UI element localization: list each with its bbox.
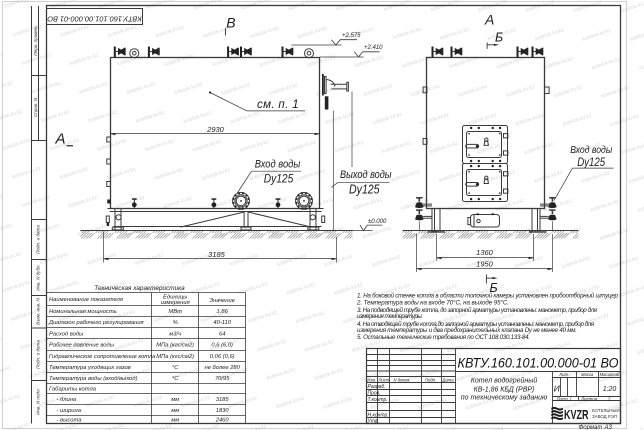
- svg-text:Значение: Значение: [209, 298, 235, 304]
- svg-text:Лист: Лист: [556, 397, 569, 402]
- svg-text:0,6 (6,0): 0,6 (6,0): [211, 343, 233, 349]
- svg-text:Dy125: Dy125: [577, 155, 605, 169]
- svg-text:Формат: Формат: [579, 425, 603, 430]
- svg-text:Гидравлическое сопротивление к: Гидравлическое сопротивление котла: [49, 354, 156, 360]
- svg-text:Подп. и дата: Подп. и дата: [35, 225, 40, 254]
- svg-text:Инв. N подл.: Инв. N подл.: [35, 388, 40, 415]
- svg-text:+2.575: +2.575: [342, 33, 361, 39]
- svg-text:%: %: [173, 320, 178, 326]
- svg-text:Т.контр.: Т.контр.: [368, 397, 388, 403]
- svg-text:Котел водогрейный: Котел водогрейный: [471, 376, 538, 384]
- svg-text:°С: °С: [172, 376, 179, 382]
- svg-text:Температура уходящих газов: Температура уходящих газов: [49, 365, 131, 371]
- svg-text:Номинальная мощность: Номинальная мощность: [49, 309, 117, 315]
- svg-text:- высота: - высота: [57, 418, 83, 424]
- svg-text:3185: 3185: [216, 397, 230, 403]
- svg-text:1950: 1950: [476, 259, 494, 268]
- svg-text:2: 2: [607, 397, 611, 402]
- svg-text:Листов: Листов: [580, 397, 598, 402]
- svg-text:А: А: [484, 12, 494, 28]
- svg-text:Справ. N: Справ. N: [33, 97, 38, 117]
- svg-text:Инв. N дубл.: Инв. N дубл.: [35, 264, 40, 291]
- svg-text:0,06 (0,6): 0,06 (0,6): [210, 354, 235, 360]
- svg-text:Перв. примен.: Перв. примен.: [33, 25, 38, 56]
- svg-text:Подп.: Подп.: [425, 377, 436, 382]
- svg-text:А3: А3: [604, 425, 613, 430]
- svg-text:1830: 1830: [216, 408, 230, 414]
- svg-text:по техническому заданию: по техническому заданию: [461, 394, 548, 402]
- svg-text:Лит.: Лит.: [558, 372, 569, 377]
- svg-text:+2.410: +2.410: [364, 45, 383, 51]
- svg-text:Диапазон рабочего регулировани: Диапазон рабочего регулирования: [48, 320, 144, 326]
- svg-text:КОТЕЛЬНЫЙ: КОТЕЛЬНЫЙ: [592, 408, 620, 413]
- svg-text:3185: 3185: [208, 250, 226, 259]
- svg-text:Температура воды (вход/выход): Температура воды (вход/выход): [49, 376, 138, 382]
- svg-text:Пров.: Пров.: [368, 391, 381, 397]
- svg-text:40-110: 40-110: [213, 320, 231, 326]
- svg-text:Вход воды: Вход воды: [255, 159, 301, 171]
- svg-text:ЗАВОД РЭП: ЗАВОД РЭП: [592, 414, 617, 419]
- svg-text:KVZR: KVZR: [564, 407, 589, 422]
- svg-text:мм: мм: [171, 397, 179, 403]
- svg-text:1,86: 1,86: [217, 309, 229, 315]
- svg-text:В: В: [226, 15, 235, 31]
- svg-text:И: И: [554, 384, 561, 394]
- svg-text:±0.000: ±0.000: [368, 219, 387, 225]
- svg-text:Б: Б: [495, 31, 503, 45]
- svg-text:- длина: - длина: [57, 397, 77, 403]
- svg-text:мм: мм: [171, 418, 179, 424]
- svg-text:Рабочее давление воды: Рабочее давление воды: [49, 343, 115, 349]
- svg-text:2460: 2460: [215, 418, 230, 424]
- svg-text:Изм.: Изм.: [367, 377, 376, 382]
- svg-text:1:20: 1:20: [603, 386, 617, 393]
- svg-text:КВТУ.160.101.00.000-01 ВО: КВТУ.160.101.00.000-01 ВО: [47, 15, 141, 24]
- svg-text:А: А: [55, 131, 66, 148]
- svg-text:- ширина: - ширина: [57, 408, 82, 414]
- svg-text:Дата: Дата: [442, 377, 455, 382]
- svg-text:64: 64: [219, 331, 225, 337]
- svg-text:Масса: Масса: [581, 372, 594, 377]
- svg-text:МПа (кгс/см2): МПа (кгс/см2): [156, 354, 194, 360]
- svg-text:°С: °С: [172, 365, 179, 371]
- svg-text:Dy125: Dy125: [349, 182, 380, 196]
- svg-text:Лист: Лист: [378, 377, 390, 382]
- svg-text:МПа (кгс/см2): МПа (кгс/см2): [156, 343, 194, 349]
- svg-text:Подп. и дата: Подп. и дата: [35, 340, 40, 369]
- svg-text:70/95: 70/95: [215, 376, 230, 382]
- svg-text:1360: 1360: [476, 248, 494, 257]
- svg-text:2930: 2930: [206, 125, 225, 134]
- svg-text:измерения: измерения: [161, 300, 190, 306]
- svg-text:измерения температуры.: измерения температуры.: [357, 313, 423, 320]
- svg-text:Техническая характеристика: Техническая характеристика: [94, 285, 185, 292]
- svg-text:Масштаб: Масштаб: [600, 372, 620, 377]
- svg-text:2. Температура воды на входе: 2. Температура воды на входе 70°С, на вы…: [356, 300, 509, 307]
- svg-text:КВ-1,86 КБД (РВР): КВ-1,86 КБД (РВР): [474, 387, 535, 394]
- svg-text:не более 280: не более 280: [205, 365, 241, 371]
- svg-text:Взам. инв. N: Взам. инв. N: [35, 297, 40, 324]
- svg-text:5. Остальные технические треб: 5. Остальные технические требования по О…: [357, 334, 530, 341]
- svg-text:Разраб.: Разраб.: [368, 384, 386, 390]
- svg-text:Расход воды: Расход воды: [49, 331, 84, 337]
- svg-text:м3/ч: м3/ч: [169, 331, 181, 337]
- svg-text:N докум.: N докум.: [394, 377, 411, 382]
- svg-text:1. На боковой стенке котла в: 1. На боковой стенке котла в области топ…: [357, 292, 619, 299]
- svg-text:Выход воды: Выход воды: [340, 169, 392, 181]
- svg-text:Утв.: Утв.: [368, 419, 379, 425]
- svg-text:Наименование показателя: Наименование показателя: [49, 297, 123, 303]
- svg-text:Dy125: Dy125: [264, 171, 294, 185]
- svg-text:КВТУ.160.101.00.000-01 ВО: КВТУ.160.101.00.000-01 ВО: [458, 355, 619, 371]
- svg-text:МВт: МВт: [168, 309, 182, 315]
- svg-text:Габариты котла: Габариты котла: [49, 387, 97, 393]
- svg-text:мм: мм: [171, 408, 179, 414]
- svg-text:см. п. 1: см. п. 1: [257, 99, 300, 111]
